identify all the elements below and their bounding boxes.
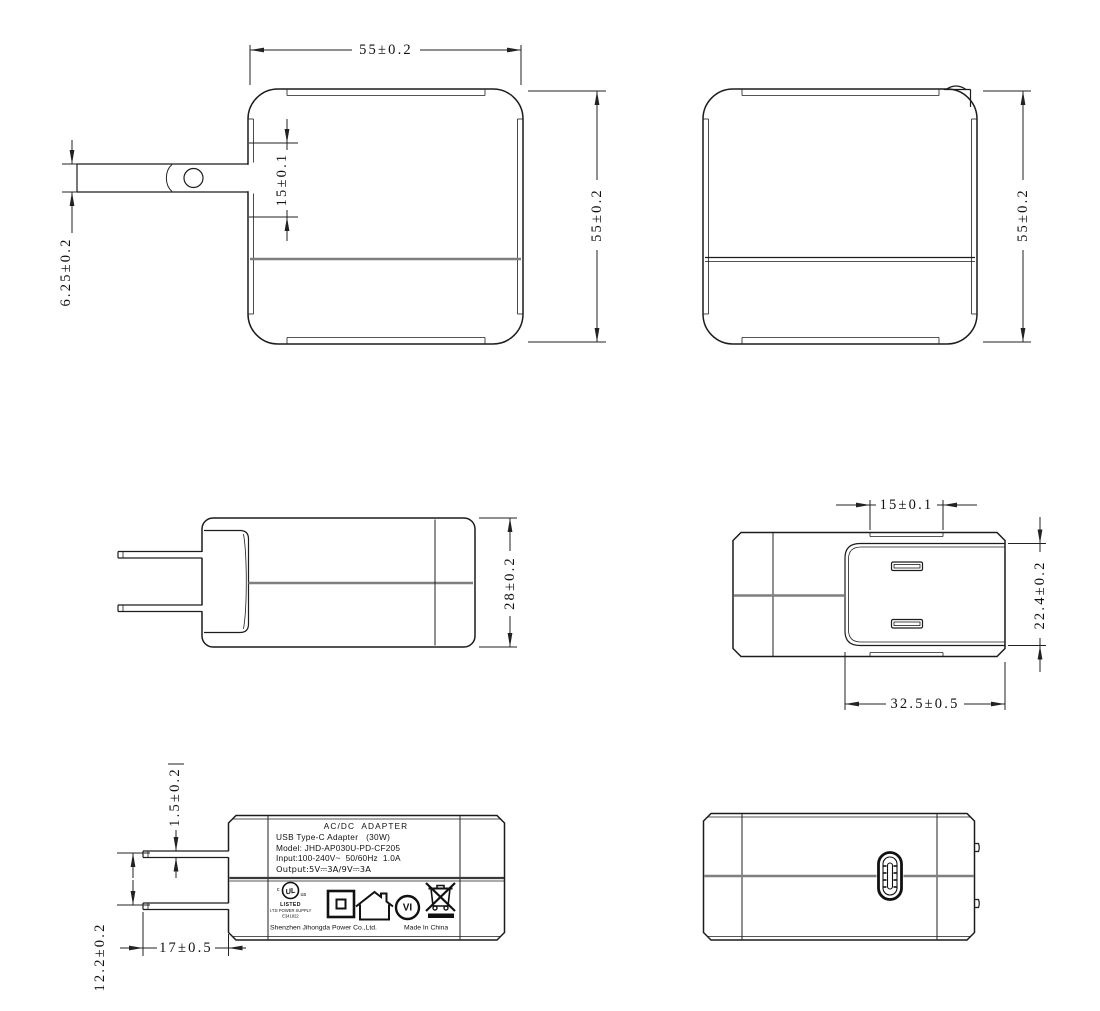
view-label: AC/DC ADAPTER USB Type-C Adapter (30W) M… — [92, 764, 505, 992]
label-made-in: Made In China — [404, 925, 448, 932]
ul-file-number: E341822 — [282, 914, 299, 919]
view-top: 15±0.1 22.4±0.2 32.5±0.5 — [733, 497, 1048, 712]
dim-back-height: 55±0.2 — [983, 91, 1031, 342]
dim-text-top-recess-width: 32.5±0.5 — [890, 696, 959, 712]
view-back: 55±0.2 — [703, 86, 1031, 344]
dim-text-front-height: 55±0.2 — [589, 188, 605, 242]
ul-letters: UL — [285, 885, 297, 896]
plug-prongs-label-view — [143, 851, 229, 910]
label-product: USB Type-C Adapter (30W) — [276, 832, 390, 842]
dim-text-label-pin-length: 17±0.5 — [159, 940, 213, 956]
double-insulation-icon — [328, 891, 354, 917]
view-front: 55±0.2 55±0.2 15±0.1 6.25±0.2 — [58, 42, 606, 344]
dim-text-front-pin-thickness: 6.25±0.2 — [58, 237, 74, 306]
dim-text-top-pin-span: 15±0.1 — [880, 497, 934, 513]
prong-slot-bottom — [892, 620, 923, 629]
dim-top-recess-height: 22.4±0.2 — [1008, 517, 1048, 672]
ul-us: us — [301, 892, 307, 898]
efficiency-level-vi-icon: VI — [396, 896, 419, 919]
dim-text-side-depth: 28±0.2 — [502, 556, 518, 610]
weee-bar — [428, 914, 454, 919]
plug-prongs-side — [118, 552, 202, 612]
dim-text-front-pin-span: 15±0.1 — [274, 153, 290, 207]
indoor-use-icon — [356, 892, 393, 920]
ul-listed-icon: UL c us LISTED I.T.E POWER SUPPLY E34182… — [270, 883, 312, 919]
dim-front-width: 55±0.2 — [250, 42, 521, 85]
label-output: Output:5V⎓3A/9V⎓3A — [276, 864, 371, 874]
dim-text-label-pin-gap: 12.2±0.2 — [92, 922, 108, 991]
adapter-drawing-svg: 55±0.2 55±0.2 15±0.1 6.25±0.2 — [0, 0, 1100, 1011]
plug-recess — [845, 544, 1005, 646]
dim-label-pin-thickness: 1.5±0.2 — [167, 764, 184, 878]
dim-text-back-height: 55±0.2 — [1015, 188, 1031, 242]
prong-slot-top — [892, 562, 923, 571]
view-side: 28±0.2 — [118, 518, 518, 647]
dim-label-pin-length: 17±0.5 — [120, 912, 246, 956]
dim-text-front-width: 55±0.2 — [359, 42, 413, 58]
weee-bin-icon — [426, 883, 455, 918]
engineering-drawing-canvas: 55±0.2 55±0.2 15±0.1 6.25±0.2 — [0, 0, 1100, 1011]
dim-front-height: 55±0.2 — [528, 91, 606, 342]
ul-c: c — [277, 887, 280, 893]
plug-prong-side — [77, 164, 248, 192]
dim-text-top-recess-height: 22.4±0.2 — [1032, 560, 1048, 629]
prong-hole — [184, 169, 203, 188]
label-title: AC/DC ADAPTER — [324, 821, 409, 831]
dim-front-pin-span: 15±0.1 — [274, 119, 290, 241]
dim-label-pin-gap: 12.2±0.2 — [92, 853, 150, 992]
usb-c-port-icon — [877, 851, 904, 902]
label-model: Model: JHD-AP030U-PD-CF205 — [276, 843, 400, 853]
efficiency-letters: VI — [403, 903, 413, 914]
dim-side-depth: 28±0.2 — [479, 518, 518, 647]
dim-top-pin-span: 15±0.1 — [836, 497, 977, 530]
label-manufacturer: Shenzhen Jihongda Power Co.,Ltd. — [270, 925, 377, 932]
label-input: Input:100-240V~ 50/60Hz 1.0A — [276, 853, 401, 863]
view-bottom — [704, 814, 980, 941]
dim-top-recess-width: 32.5±0.5 — [845, 652, 1005, 712]
dim-front-pin-thickness: 6.25±0.2 — [58, 140, 77, 307]
plug-carrier — [204, 531, 249, 633]
ul-ite-text: I.T.E POWER SUPPLY — [270, 908, 312, 913]
dim-text-label-pin-thickness: 1.5±0.2 — [167, 767, 183, 827]
rating-label: AC/DC ADAPTER USB Type-C Adapter (30W) M… — [270, 821, 455, 932]
